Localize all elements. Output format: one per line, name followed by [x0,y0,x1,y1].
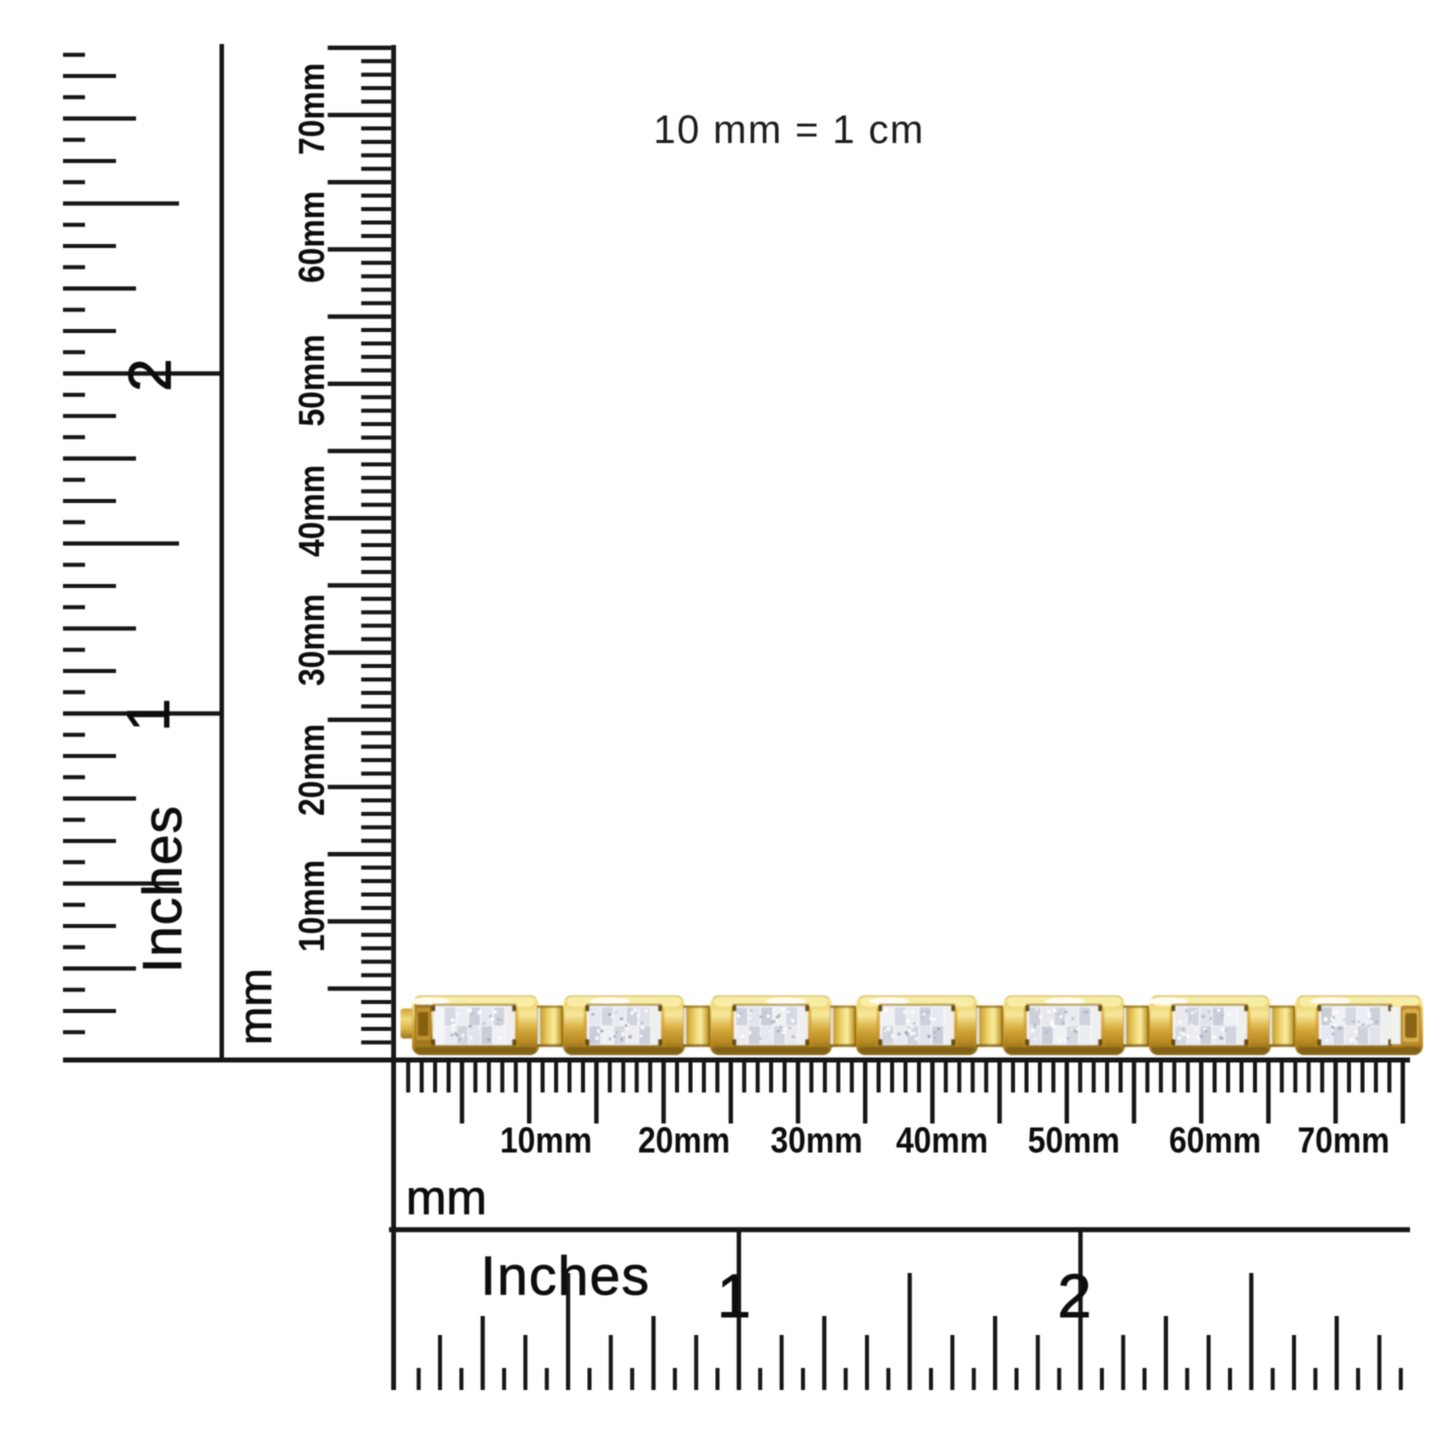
svg-text:60mm: 60mm [1169,1121,1261,1161]
svg-text:50mm: 50mm [292,334,332,426]
svg-text:Inches: Inches [131,805,193,973]
svg-text:20mm: 20mm [292,724,332,816]
svg-text:2: 2 [1058,1262,1092,1330]
svg-text:30mm: 30mm [292,594,332,686]
svg-text:Inches: Inches [481,1245,651,1307]
svg-text:70mm: 70mm [1297,1121,1389,1161]
svg-text:mm: mm [229,968,281,1045]
svg-text:10mm: 10mm [500,1121,592,1161]
svg-text:10 mm = 1 cm: 10 mm = 1 cm [653,108,924,152]
svg-text:10mm: 10mm [292,860,332,952]
svg-text:30mm: 30mm [770,1121,862,1161]
svg-text:2: 2 [117,358,184,391]
svg-text:40mm: 40mm [292,465,332,557]
svg-text:60mm: 60mm [292,191,332,283]
svg-text:40mm: 40mm [896,1121,988,1161]
svg-text:mm: mm [406,1171,487,1225]
svg-text:50mm: 50mm [1028,1121,1120,1161]
svg-text:1: 1 [115,698,182,731]
svg-text:1: 1 [717,1262,751,1330]
svg-text:20mm: 20mm [638,1121,730,1161]
svg-text:70mm: 70mm [292,63,332,155]
